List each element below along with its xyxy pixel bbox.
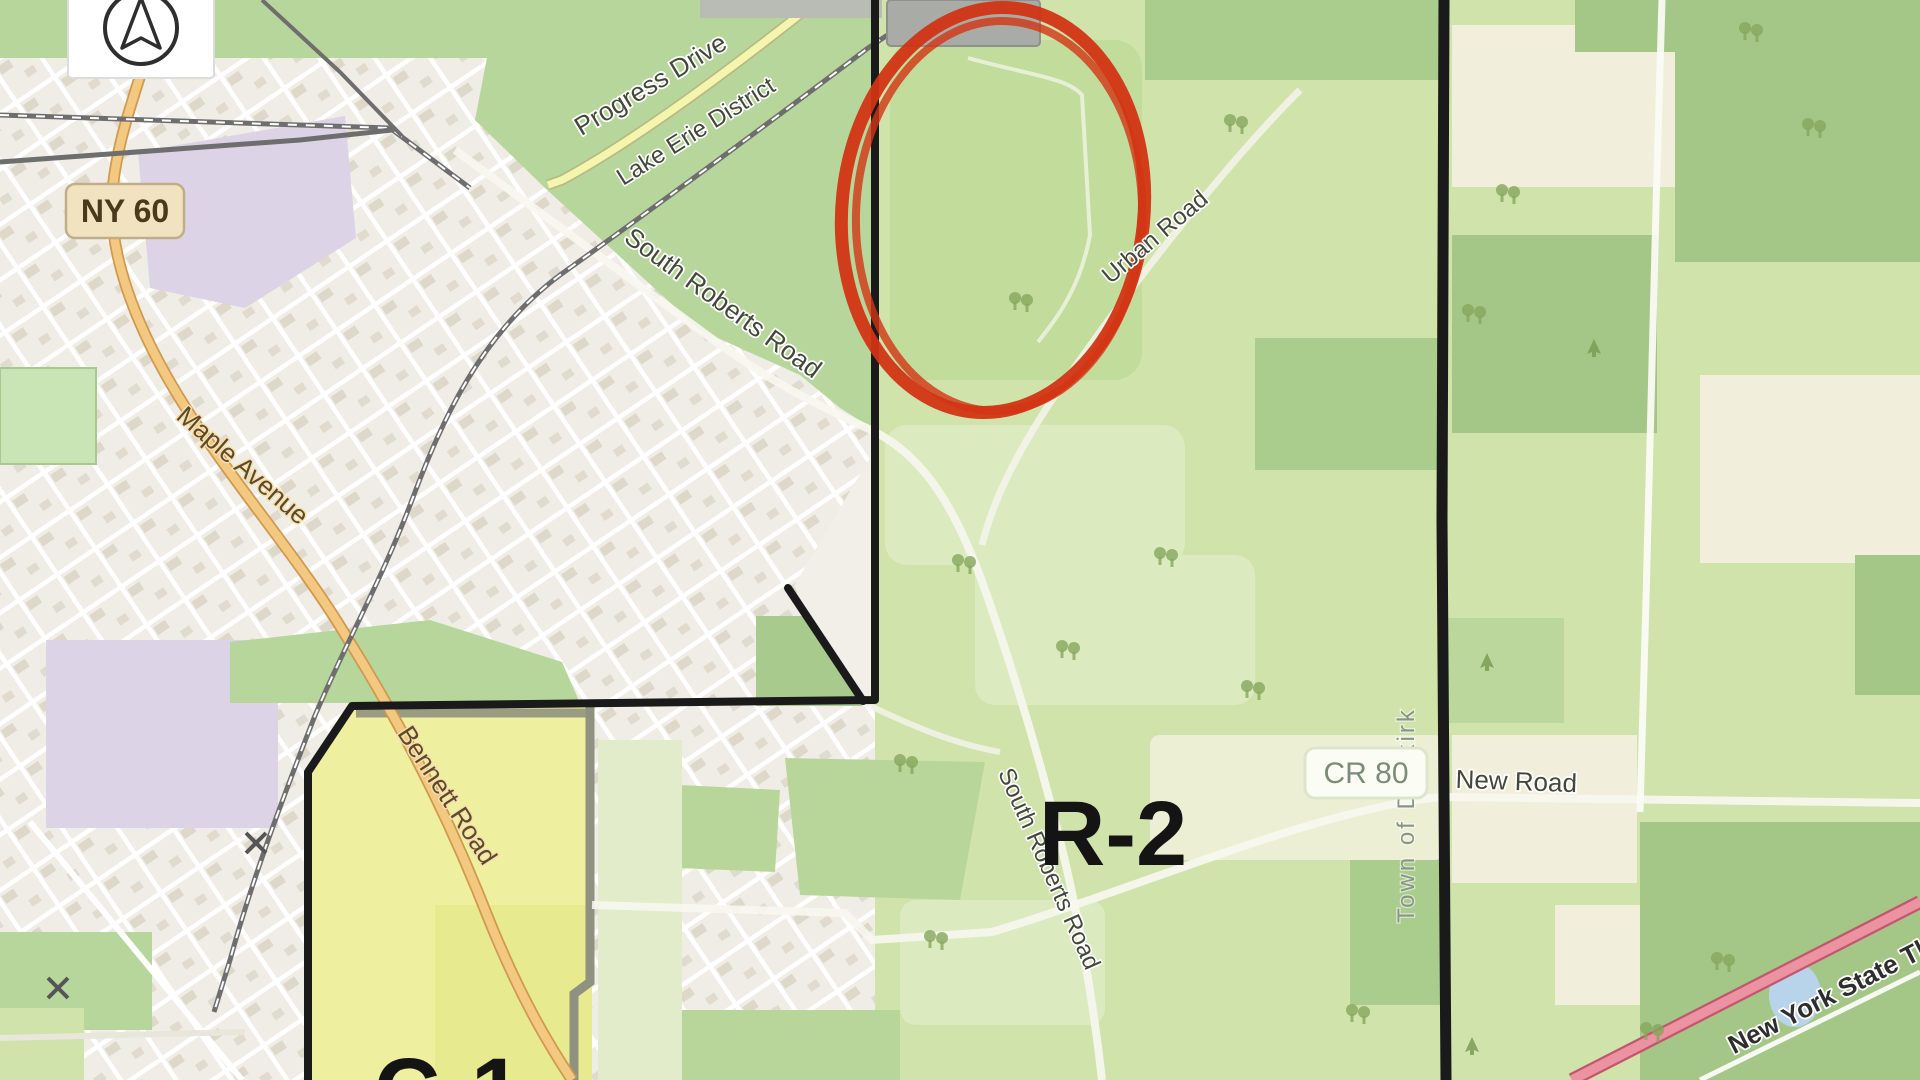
forest-patch [785,758,985,900]
forest-patch [1452,235,1657,433]
forest-patch [1145,0,1442,80]
label-town-of-dunkirk: Town of Dunkirk [1393,707,1420,923]
clearing-area [885,425,1185,565]
cr80-shield: CR 80 [1305,748,1427,798]
farmland-area [1700,375,1920,563]
zoning-map-canvas[interactable]: Progress Drive Lake Erie District South … [0,0,1920,1080]
forest-patch [1675,52,1920,262]
map-svg: Progress Drive Lake Erie District South … [0,0,1920,1080]
forest-patch [660,1010,900,1080]
ny60-shield: NY 60 [66,184,184,238]
compass-north-icon[interactable] [68,0,214,78]
zone-label-r2: R-2 [1039,783,1187,885]
forest-patch [1855,555,1920,695]
farmland-area [1452,735,1637,883]
ny60-shield-text: NY 60 [81,193,169,229]
park-area [0,368,96,464]
forest-patch [1255,338,1442,470]
green-area [0,1008,84,1080]
zone-label-c1: C-1 [374,1040,522,1080]
cr80-shield-text: CR 80 [1323,757,1408,790]
farmland-area [1555,905,1643,1005]
label-new-road: New Road [1455,764,1577,798]
forest-patch [1444,618,1564,723]
building [700,0,882,18]
